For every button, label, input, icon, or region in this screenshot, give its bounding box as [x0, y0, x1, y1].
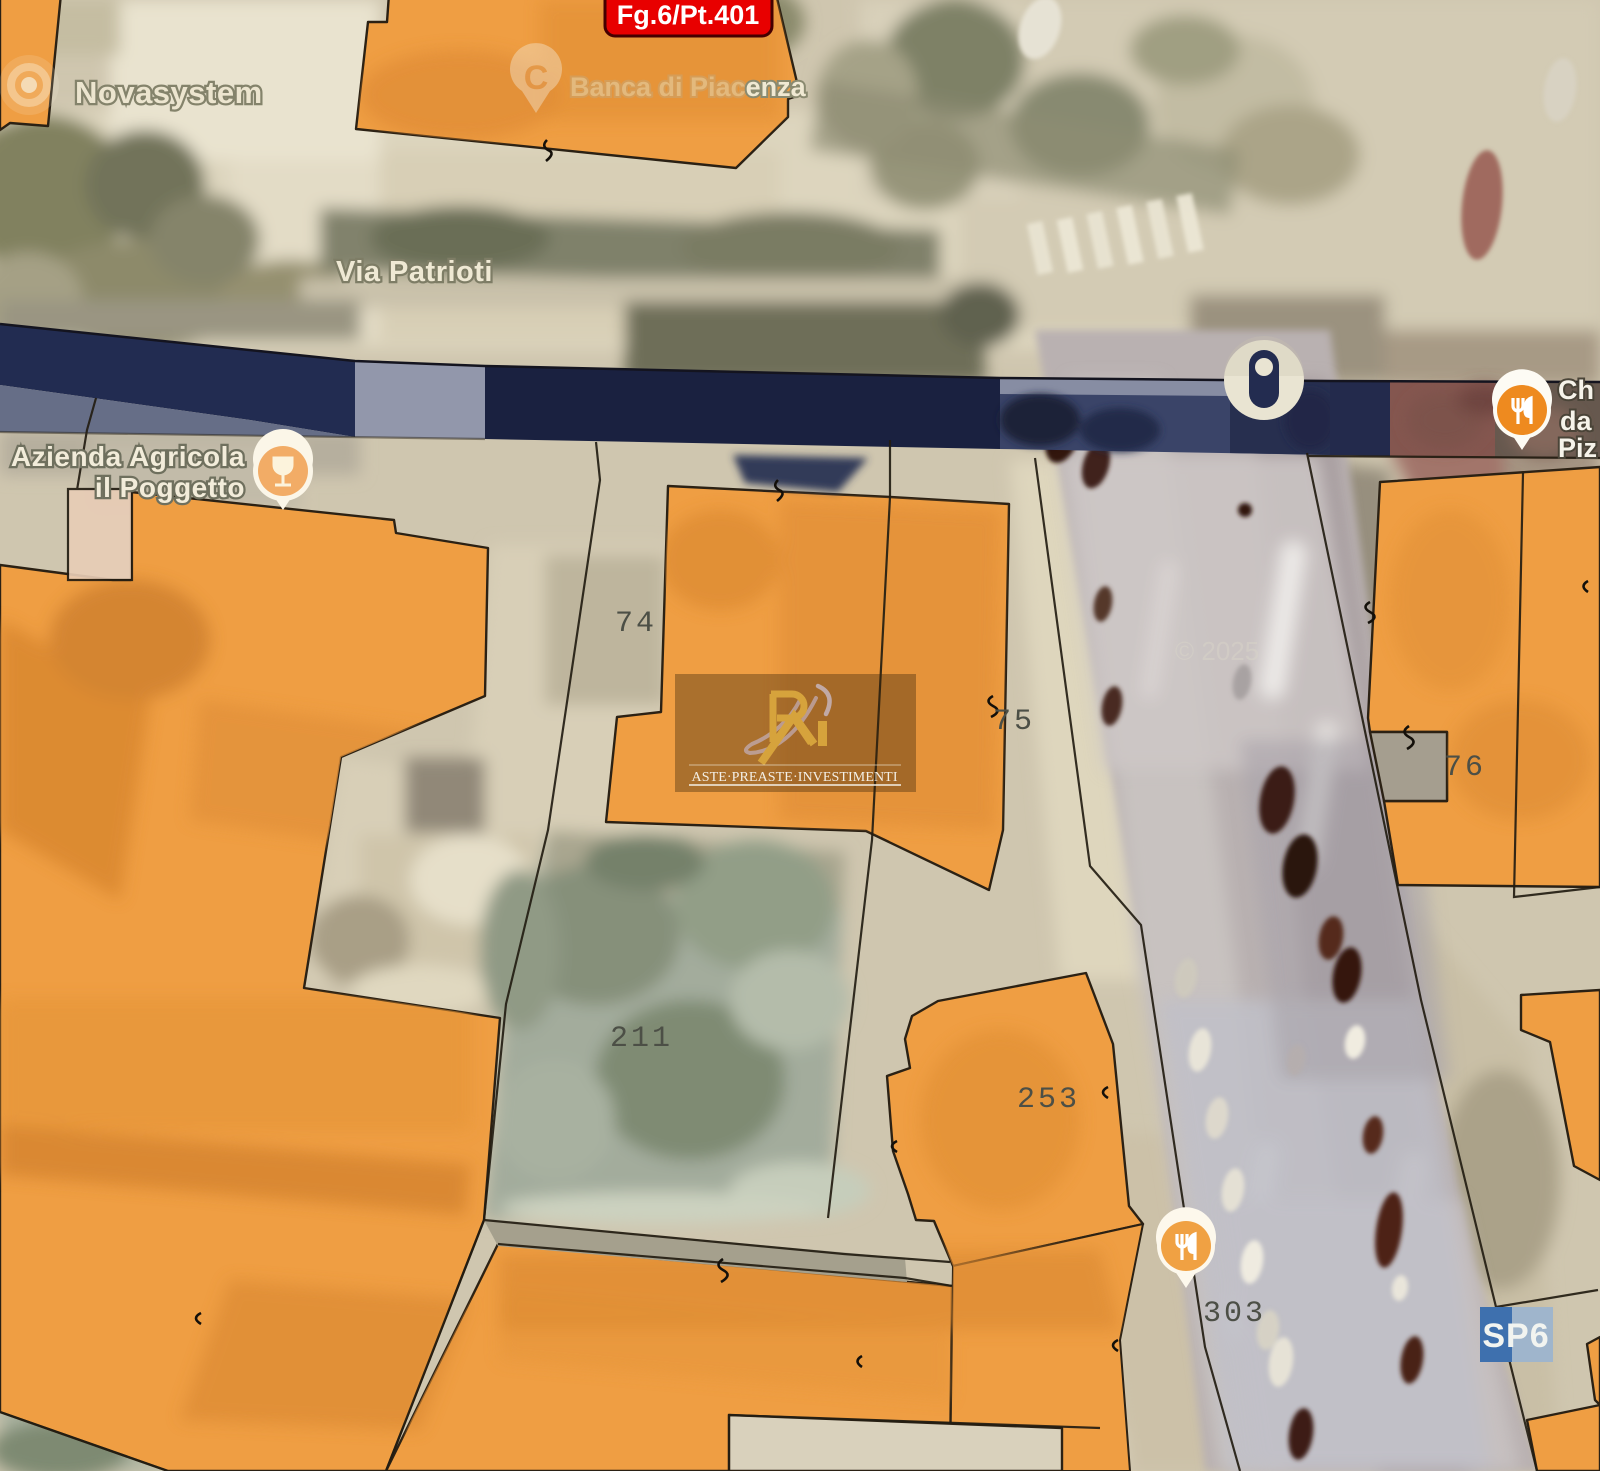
- svg-text:253: 253: [1017, 1083, 1080, 1117]
- svg-text:74: 74: [615, 607, 657, 641]
- svg-text:SP6: SP6: [1482, 1317, 1549, 1355]
- svg-text:© 2025: © 2025: [1175, 636, 1259, 666]
- svg-text:ASTE·PREASTE·INVESTIMENTI: ASTE·PREASTE·INVESTIMENTI: [692, 770, 899, 785]
- svg-text:Azienda Agricola: Azienda Agricola: [11, 441, 245, 472]
- svg-text:il Poggetto: il Poggetto: [95, 472, 245, 503]
- svg-text:211: 211: [610, 1022, 673, 1056]
- svg-text:75: 75: [993, 705, 1035, 739]
- svg-text:Fg.6/Pt.401: Fg.6/Pt.401: [617, 0, 760, 30]
- svg-text:Piz: Piz: [1558, 433, 1597, 463]
- svg-text:da: da: [1560, 406, 1592, 436]
- svg-text:Banca di Piacenza: Banca di Piacenza: [570, 72, 807, 102]
- svg-text:Novasystem: Novasystem: [75, 75, 263, 110]
- svg-text:Via Patrioti: Via Patrioti: [336, 256, 493, 288]
- svg-text:C: C: [524, 59, 549, 97]
- svg-text:76: 76: [1444, 751, 1486, 785]
- svg-text:303: 303: [1203, 1297, 1266, 1331]
- svg-text:Ch: Ch: [1558, 375, 1594, 405]
